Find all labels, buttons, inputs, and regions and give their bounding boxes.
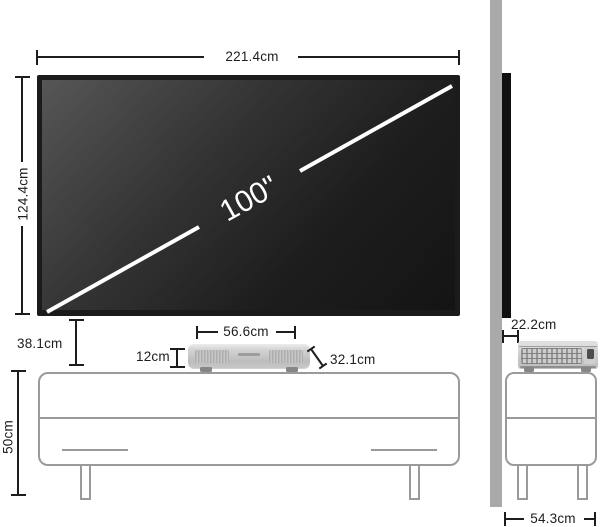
screen-diagonal-label: 100" <box>214 170 283 228</box>
dim-line <box>38 56 204 58</box>
dim-line <box>21 78 23 162</box>
speaker-grille-left <box>195 350 229 363</box>
projector-side-port <box>587 349 594 359</box>
drawer-handle <box>62 449 128 451</box>
cabinet-side <box>505 372 597 466</box>
dim-line <box>584 518 595 520</box>
projector-dimension-diagram: 221.4cm 124.4cm 100" 38.1cm 12cm <box>0 0 600 527</box>
projector-width-label: 56.6cm <box>216 325 276 339</box>
cabinet-depth-label: 54.3cm <box>522 512 584 526</box>
dim-cap <box>11 494 26 496</box>
screen-diagonal-graphic: 100" <box>37 75 460 316</box>
drawer-handle <box>371 449 437 451</box>
cabinet-divider <box>507 417 595 419</box>
dim-line <box>17 372 19 494</box>
depth-pointer <box>306 345 330 371</box>
projector-logo <box>238 353 260 356</box>
dim-line <box>276 331 295 333</box>
cabinet-divider <box>40 417 458 419</box>
dim-line <box>75 321 77 364</box>
wall-bar <box>490 0 502 507</box>
cabinet-height-label: 50cm <box>1 420 15 454</box>
dim-line <box>503 335 518 337</box>
screen-width-label: 221.4cm <box>202 50 302 64</box>
cabinet-leg <box>517 465 528 500</box>
screen-gap-label: 38.1cm <box>17 337 62 351</box>
projector-side-panel <box>584 347 596 364</box>
screen-front: 100" <box>37 75 460 316</box>
cabinet-leg <box>577 465 588 500</box>
wall-gap-label: 22.2cm <box>511 318 556 332</box>
dim-line <box>298 56 458 58</box>
screen-height-label: 124.4cm <box>16 167 30 220</box>
dim-cap <box>170 366 185 368</box>
dim-cap <box>458 50 460 65</box>
projector-side-grille <box>521 348 582 364</box>
speaker-grille-right <box>269 350 303 363</box>
projector-side <box>518 341 598 368</box>
cabinet-leg <box>409 465 420 500</box>
cabinet-leg <box>80 465 91 500</box>
projector-depth-label: 32.1cm <box>330 353 375 367</box>
screen-side-edge <box>502 73 511 318</box>
dim-cap <box>69 364 84 366</box>
cabinet-front <box>38 372 460 466</box>
projector-front <box>188 344 310 368</box>
projector-height-label: 12cm <box>136 350 170 364</box>
dim-line <box>176 350 178 366</box>
dim-line <box>198 331 218 333</box>
dim-line <box>21 226 23 314</box>
